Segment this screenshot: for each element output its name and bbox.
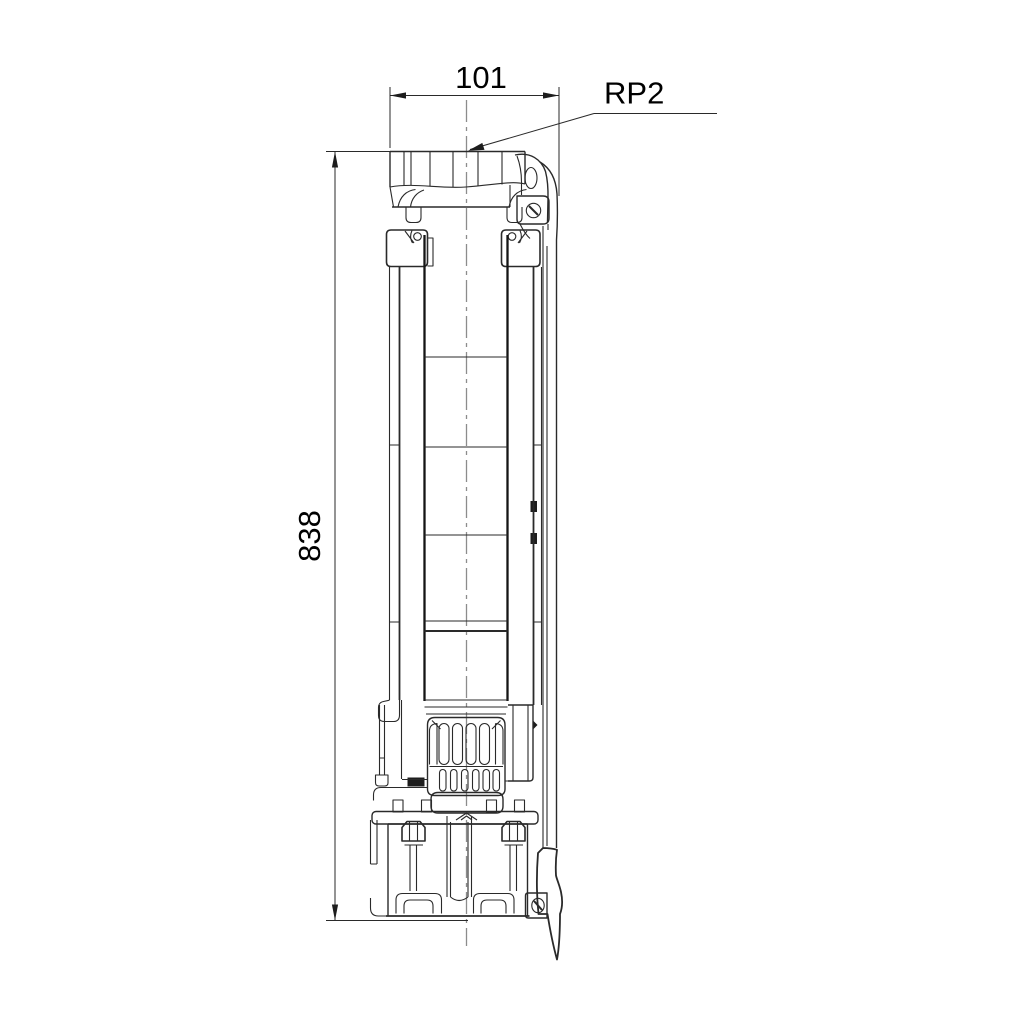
width-arrow-left — [390, 92, 406, 98]
flange-stud — [515, 800, 525, 812]
motor-left-tab — [371, 820, 389, 916]
strainer-slot — [453, 724, 463, 765]
bracket-lower-lines — [520, 224, 548, 239]
height-arrow-bottom — [332, 905, 338, 921]
strainer-slot-small — [451, 770, 458, 792]
bracket-inner-line — [517, 156, 522, 195]
cable-guard — [526, 162, 563, 960]
left-strap-foot — [379, 700, 400, 722]
left-block-detail — [405, 231, 433, 267]
motor-center-channel — [447, 816, 472, 901]
drawing-canvas: 101 838 RP2 — [0, 0, 1024, 1024]
left-hanger-foot — [376, 775, 389, 786]
dimension-height: 838 — [292, 152, 468, 921]
head-rib-lines — [404, 152, 502, 187]
flange-stud — [487, 800, 497, 812]
flange-stud — [422, 800, 432, 812]
left-strap-joints — [390, 445, 400, 622]
head-side-edges — [390, 152, 525, 188]
inlet-shadow — [408, 778, 425, 787]
left-block-pin — [414, 233, 422, 241]
strainer-slot — [439, 724, 449, 765]
height-arrow-top — [332, 152, 338, 168]
strainer-slot — [480, 724, 490, 765]
casing-sides — [390, 185, 510, 207]
width-arrow-right — [543, 92, 559, 98]
hex-bolt-left-detail — [403, 822, 425, 892]
strainer-slot-small — [483, 770, 490, 792]
width-extension-lines — [390, 87, 559, 196]
support-straps — [379, 267, 542, 722]
right-column-mark — [534, 721, 538, 729]
height-dimension-text: 838 — [292, 510, 327, 562]
right-column — [508, 705, 533, 781]
bracket-oval-hole — [525, 168, 537, 189]
callout-leader-line — [470, 114, 594, 150]
flange-stud — [393, 800, 403, 812]
motor-right-foot — [474, 894, 515, 914]
strainer-slot-small — [473, 770, 480, 792]
casing-tabs — [406, 207, 522, 223]
head-bottom-curve — [390, 183, 525, 188]
motor — [371, 800, 539, 916]
guard-bottom-blade — [537, 848, 562, 960]
clamp-blocks — [387, 230, 541, 267]
strainer-slot-small — [440, 770, 447, 792]
hex-bolt-right-detail — [503, 822, 525, 892]
callout-arrow — [468, 143, 485, 151]
strainer-slot — [466, 724, 476, 765]
cable-entry-bracket — [515, 154, 549, 238]
motor-body-outline — [388, 824, 528, 916]
strainer-slot-small — [493, 770, 500, 792]
connection-label-text: RP2 — [604, 76, 664, 111]
left-hanger — [380, 705, 385, 775]
guard-inner-lines — [543, 226, 547, 848]
width-dimension-text: 101 — [455, 60, 507, 95]
valve-casing — [390, 185, 527, 223]
dimension-width: 101 — [390, 60, 559, 196]
top-screw-slot — [529, 206, 538, 215]
casing-rib-curves — [398, 190, 527, 208]
right-block-pin — [508, 233, 516, 241]
suction-interconnector — [374, 700, 538, 801]
right-block-detail — [518, 231, 527, 244]
discharge-head — [390, 152, 525, 188]
motor-left-foot — [396, 894, 442, 914]
pump-dimensional-drawing: 101 838 RP2 — [0, 0, 1024, 1024]
right-column-lines — [505, 705, 530, 781]
